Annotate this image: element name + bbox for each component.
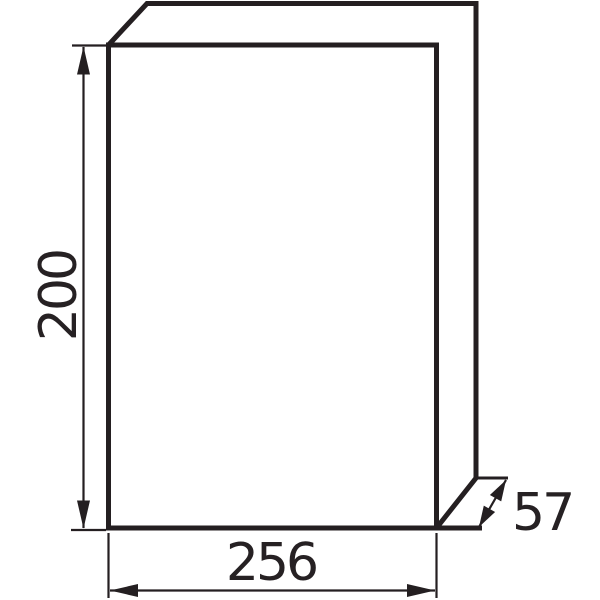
height-arrow-down-icon <box>77 501 90 529</box>
drawing-svg: 200 256 57 <box>0 0 600 600</box>
depth-arrow-up-icon <box>490 480 506 501</box>
box-front-face <box>109 45 437 528</box>
height-dimension: 200 <box>29 46 106 531</box>
depth-dimension: 57 <box>476 478 572 543</box>
height-arrow-up-icon <box>77 47 90 75</box>
width-dimension-label: 256 <box>226 533 316 593</box>
box-outline <box>109 4 483 529</box>
dimension-drawing: 200 256 57 <box>0 0 600 600</box>
box-top-and-back-edges <box>109 4 477 529</box>
width-dimension: 256 <box>109 533 437 598</box>
width-arrow-right-icon <box>407 584 435 597</box>
depth-arrow-down-icon <box>479 506 495 527</box>
depth-dimension-label: 57 <box>512 483 572 543</box>
width-arrow-left-icon <box>110 584 138 597</box>
height-dimension-label: 200 <box>29 251 89 341</box>
